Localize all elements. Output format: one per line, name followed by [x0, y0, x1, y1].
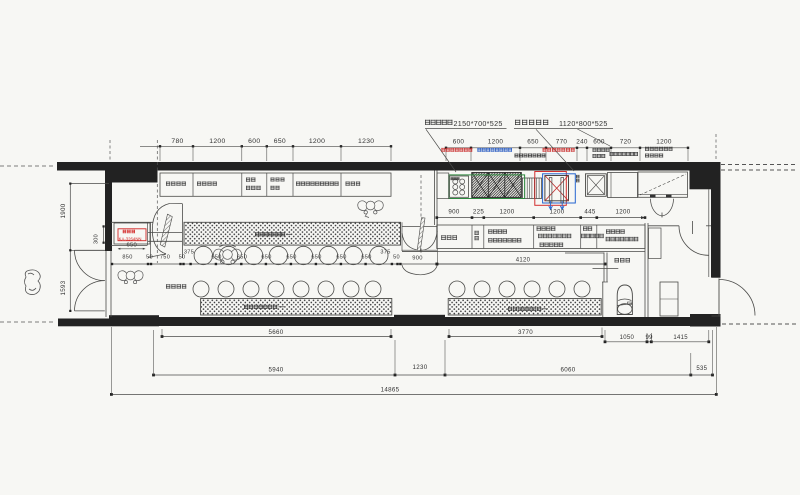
svg-text:1200: 1200: [550, 209, 565, 216]
svg-text:5940: 5940: [269, 367, 284, 374]
svg-text:850: 850: [122, 254, 132, 260]
svg-text:650: 650: [261, 254, 271, 260]
svg-text:225: 225: [473, 209, 484, 216]
svg-text:900: 900: [412, 256, 423, 262]
svg-text:770: 770: [556, 139, 568, 146]
svg-text:1200: 1200: [309, 138, 325, 145]
svg-text:780: 780: [171, 138, 183, 145]
svg-text:600: 600: [453, 139, 465, 146]
svg-text:650: 650: [336, 254, 346, 260]
svg-text:1200: 1200: [500, 209, 515, 216]
svg-text:750: 750: [160, 254, 170, 260]
svg-text:1200: 1200: [656, 139, 672, 146]
svg-text:1230: 1230: [358, 138, 374, 145]
svg-text:375: 375: [184, 249, 194, 255]
svg-text:650: 650: [274, 138, 286, 145]
svg-text:445: 445: [584, 209, 595, 216]
svg-text:14865: 14865: [381, 386, 400, 393]
svg-text:600: 600: [248, 138, 260, 145]
svg-text:1200: 1200: [488, 139, 504, 146]
svg-text:KA-3264NN: KA-3264NN: [119, 236, 142, 241]
svg-text:1200: 1200: [616, 209, 631, 216]
svg-text:1900: 1900: [60, 203, 67, 218]
svg-text:1050: 1050: [620, 335, 635, 341]
svg-text:650: 650: [311, 254, 321, 260]
svg-text:1230: 1230: [413, 364, 428, 371]
svg-text:375: 375: [380, 249, 390, 255]
svg-text:50: 50: [393, 255, 400, 261]
svg-text:2150*700*525: 2150*700*525: [454, 119, 503, 128]
svg-text:300: 300: [94, 234, 100, 244]
svg-text:650: 650: [527, 139, 539, 146]
svg-text:3770: 3770: [518, 329, 533, 336]
svg-text:240: 240: [576, 139, 588, 146]
svg-text:900: 900: [448, 209, 459, 216]
svg-text:4120: 4120: [516, 258, 531, 264]
svg-text:1415: 1415: [673, 335, 688, 341]
svg-text:1593: 1593: [60, 280, 67, 295]
svg-text:1120*800*525: 1120*800*525: [559, 119, 608, 128]
svg-text:535: 535: [696, 366, 707, 372]
svg-text:5660: 5660: [269, 329, 284, 336]
svg-text:99: 99: [646, 335, 654, 341]
svg-text:650: 650: [286, 254, 296, 260]
svg-text:650: 650: [361, 254, 371, 260]
svg-text:600: 600: [593, 139, 605, 146]
svg-text:6060: 6060: [561, 367, 576, 374]
svg-text:50: 50: [146, 254, 153, 260]
svg-text:1200: 1200: [209, 138, 225, 145]
svg-text:720: 720: [620, 139, 632, 146]
